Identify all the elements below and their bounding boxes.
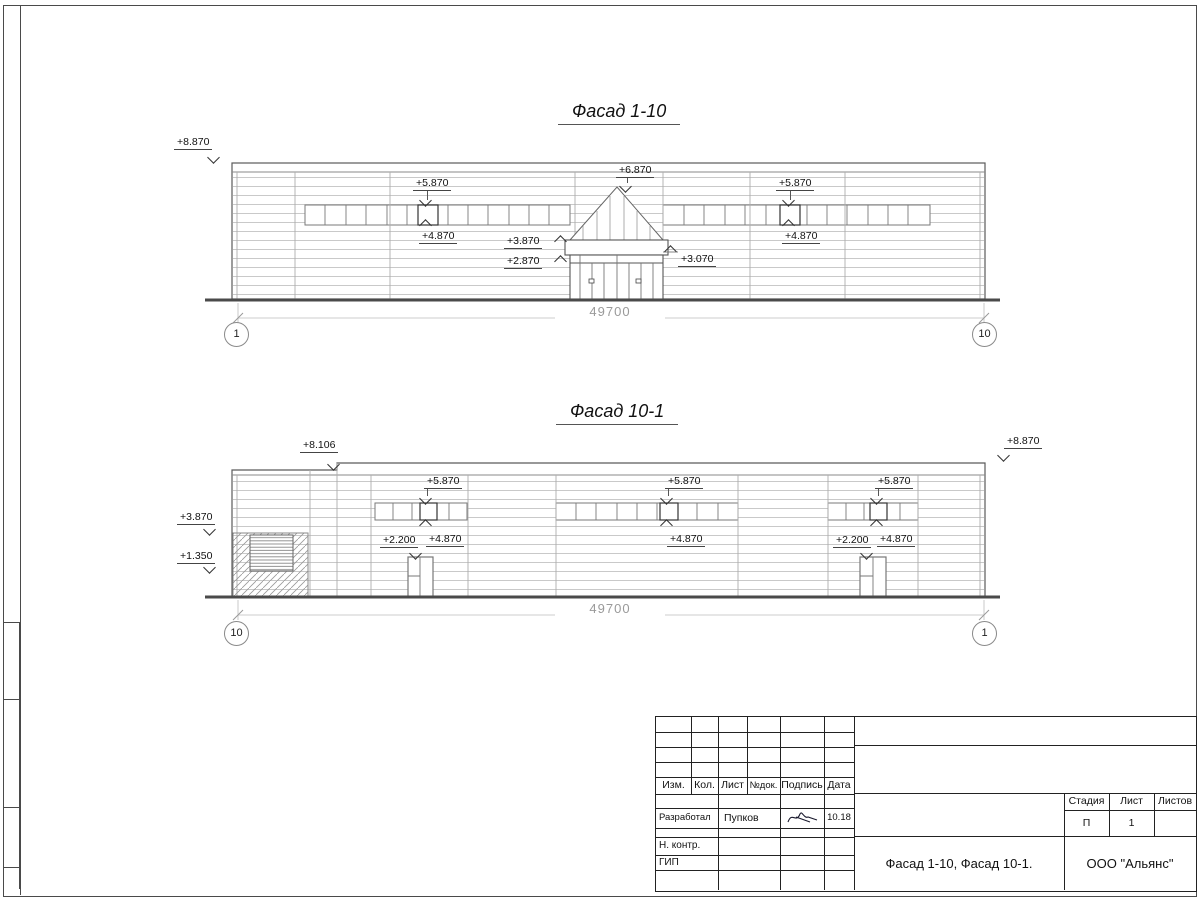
- elevation-mark: +5.870: [665, 475, 703, 489]
- elevation-mark: +4.870: [667, 533, 705, 547]
- tb-line: [656, 828, 854, 829]
- tb-line: [824, 717, 825, 890]
- tb-line: [656, 732, 854, 733]
- tb-sheets-value: [1154, 810, 1196, 836]
- dimension-value: 49700: [555, 601, 665, 616]
- elevation-mark: +3.870: [504, 235, 542, 249]
- tb-header-izm: Изм.: [656, 777, 691, 794]
- elevation-mark: +5.870: [875, 475, 913, 489]
- tb-line: [656, 747, 854, 748]
- tb-norm-control-label: Н. контр.: [659, 837, 719, 855]
- tb-stage-label: Стадия: [1064, 793, 1109, 810]
- axis-bubble-10: 10: [972, 322, 997, 347]
- signature-icon: [784, 809, 822, 827]
- tb-header-kol: Кол.: [691, 777, 718, 794]
- strip-divider: [4, 699, 19, 700]
- tb-line: [656, 762, 854, 763]
- facade-10-1-title: Фасад 10-1: [556, 401, 678, 425]
- facade-1-10-linework: [200, 160, 1010, 355]
- tb-header-podpis: Подпись: [780, 777, 824, 794]
- tb-header-ndok: №док.: [747, 777, 780, 794]
- elevation-mark: +8.870: [1004, 435, 1042, 449]
- drawing-sheet: Фасад 1-10 +8.870 +5.870: [0, 0, 1200, 900]
- elevation-mark: +2.200: [380, 534, 418, 548]
- tb-sheets-label: Листов: [1154, 793, 1196, 810]
- elevation-mark: +5.870: [413, 177, 451, 191]
- facade-1-10-title: Фасад 1-10: [558, 101, 680, 125]
- tb-line: [656, 870, 854, 871]
- dimension-value: 49700: [555, 304, 665, 319]
- elevation-mark: +3.070: [678, 253, 716, 267]
- tb-line: [854, 745, 1196, 746]
- elevation-mark: +2.200: [833, 534, 871, 548]
- tb-company: ООО "Альянс": [1064, 836, 1196, 890]
- strip-divider: [4, 807, 19, 808]
- elevation-mark: +6.870: [616, 164, 654, 178]
- title-block: Изм. Кол. Лист №док. Подпись Дата Разраб…: [655, 716, 1197, 892]
- elevation-mark: +8.870: [174, 136, 212, 150]
- tb-header-list: Лист: [718, 777, 747, 794]
- tb-developer-date: 10.18: [824, 808, 854, 828]
- tb-developer-name: Пупков: [724, 808, 779, 828]
- tb-sheet-label: Лист: [1109, 793, 1154, 810]
- axis-bubble-1: 1: [224, 322, 249, 347]
- elevation-mark: +5.870: [776, 177, 814, 191]
- tb-developer-label: Разработал: [659, 808, 717, 828]
- strip-divider: [4, 867, 19, 868]
- elevation-mark: +8.106: [300, 439, 338, 453]
- tb-gip-label: ГИП: [659, 855, 719, 870]
- tb-sheet-value: 1: [1109, 810, 1154, 836]
- tb-line: [780, 717, 781, 890]
- sheet-left-frame-line: [20, 5, 21, 895]
- axis-bubble-10: 10: [224, 621, 249, 646]
- tb-line: [656, 794, 854, 795]
- elevation-mark: +5.870: [424, 475, 462, 489]
- left-margin-attribute-strip: [4, 622, 20, 889]
- tb-stage-value: П: [1064, 810, 1109, 836]
- elevation-mark: +4.870: [426, 533, 464, 547]
- elevation-mark: +4.870: [877, 533, 915, 547]
- elevation-mark: +2.870: [504, 255, 542, 269]
- axis-bubble-1: 1: [972, 621, 997, 646]
- tb-header-data: Дата: [824, 777, 854, 794]
- tb-doc-title: Фасад 1-10, Фасад 10-1.: [854, 836, 1064, 890]
